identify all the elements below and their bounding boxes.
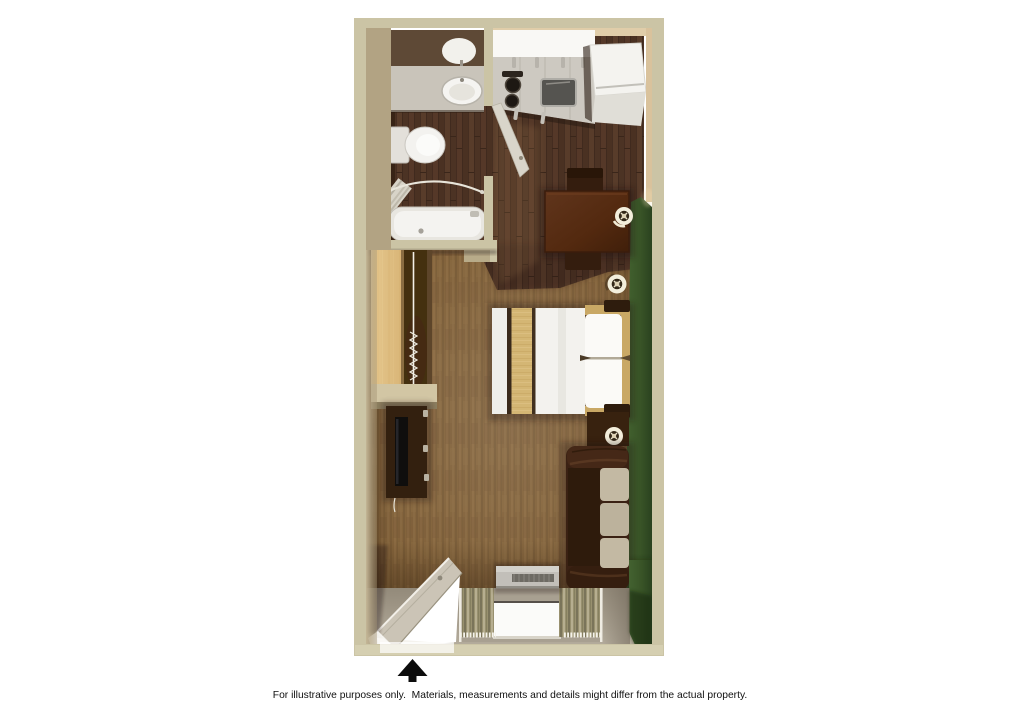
svg-text:For illustrative purposes only: For illustrative purposes only. Material… xyxy=(273,690,747,701)
